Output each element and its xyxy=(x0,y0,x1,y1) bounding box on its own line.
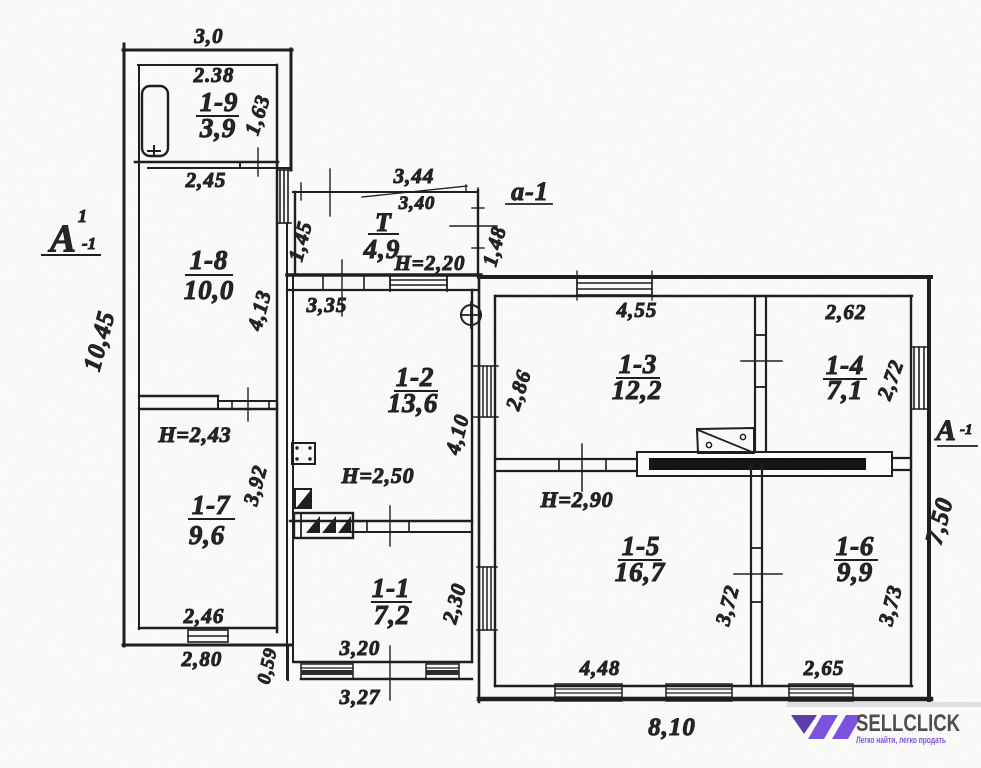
svg-text:SELLCLICK: SELLCLICK xyxy=(856,710,961,737)
svg-text:Легко найти, легко продать: Легко найти, легко продать xyxy=(856,735,946,745)
